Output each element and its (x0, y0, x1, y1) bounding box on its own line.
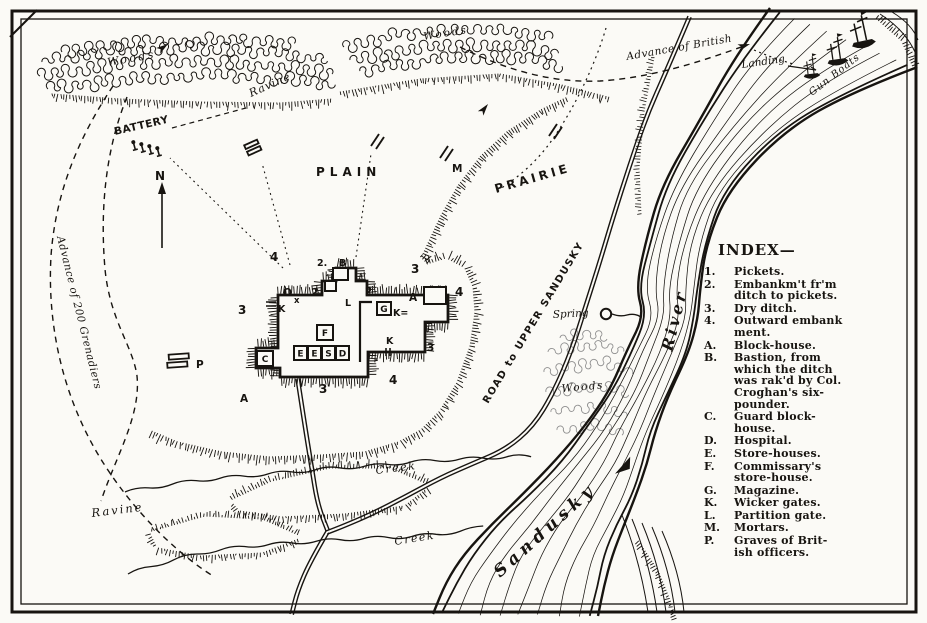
index-item-text: Pickets. (734, 266, 906, 278)
bluff-under-woods-east (340, 74, 609, 104)
ravine-upper-label: Ravine (246, 70, 293, 100)
cannon-icon (154, 146, 161, 157)
corner-shore (876, 15, 919, 68)
fort-stephenson (256, 268, 448, 377)
road-line (326, 16, 688, 531)
index-title: INDEX— (702, 241, 906, 259)
woods-by-river-label: Woods (561, 379, 604, 395)
ravine-mound-2 (145, 511, 299, 564)
road-line (293, 533, 329, 615)
river-bluff-west (633, 58, 654, 215)
fort-marker: 4 (270, 250, 278, 264)
small-woods-scribble (560, 329, 607, 341)
index-item: G.Magazine. (702, 485, 906, 497)
index-item-key: M. (702, 522, 734, 534)
index-item: B.Bastion, fromwhich the ditchwas rak'd … (702, 352, 906, 410)
grenadier-route-inner (101, 97, 137, 501)
shore-contour (632, 519, 657, 612)
index-item: 3.Dry ditch. (702, 303, 906, 315)
british-gun-bars (244, 140, 261, 156)
battery-cannon-icons (130, 140, 161, 157)
index-item-text: Store-houses. (734, 448, 906, 460)
index-item: E.Store-houses. (702, 448, 906, 460)
prairie-arrow (478, 102, 491, 116)
cannon-icon (146, 144, 153, 155)
fire-line-1 (170, 158, 283, 268)
fort-marker: x (294, 296, 300, 306)
fort-building-letter: F (322, 329, 328, 339)
shore-contour (622, 515, 648, 612)
gunboat-icon (845, 9, 876, 50)
mortar-slashes-2 (440, 146, 453, 161)
road-line (299, 378, 329, 529)
fort-wall (256, 268, 448, 377)
woods-scribble (360, 49, 563, 77)
index-item-text: Partition gate. (734, 510, 906, 522)
small-woods-scribble (548, 341, 624, 354)
creeks (125, 455, 531, 574)
index-item: F.Commissary'sstore-house. (702, 461, 906, 484)
fort-marker: M (452, 163, 462, 175)
prairie-label: PRAIRIE (493, 161, 572, 196)
ravine-lower-label: Ravine (90, 500, 144, 520)
sandusky-word-label: Sandusky (490, 479, 601, 582)
fort-marker: 4 (455, 285, 463, 299)
fort-marker: N (155, 169, 165, 183)
fort-building-letter: D (339, 350, 346, 360)
index-item: 4.Outward embankment. (702, 315, 906, 338)
river-flow-arrow (612, 457, 636, 477)
fort-marker: A (240, 393, 249, 405)
fort-marker: O (283, 287, 292, 299)
woods-top-left-label: Woods (106, 48, 157, 69)
index-item-text: Hospital. (734, 435, 906, 447)
river-word-label: River (657, 288, 691, 354)
fort-marker: K (278, 304, 286, 315)
fort-building-letter: S (325, 350, 331, 360)
map-index: INDEX— 1.Pickets.2.Embankm't fr'mditch t… (702, 241, 906, 559)
fort-building-box (333, 268, 348, 280)
corner-contours (880, 12, 918, 52)
creek-lower-label: Creek (393, 529, 435, 548)
index-item-text: Embankm't fr'mditch to pickets. (734, 279, 906, 302)
fort-marker: 2. (317, 258, 327, 269)
spring-icon (601, 309, 641, 319)
index-item-key: D. (702, 435, 734, 447)
fort-marker: A (409, 292, 418, 304)
index-item-key: B. (702, 352, 734, 364)
fort-building-letter: E (311, 350, 317, 360)
bluff-under-woods-west (52, 94, 331, 111)
index-item-text: Dry ditch. (734, 303, 906, 315)
fort-marker: 2 (365, 286, 372, 298)
graves-bars (167, 353, 190, 368)
creek-upper-line (125, 455, 531, 492)
index-item-key: 1. (702, 266, 734, 278)
index-item-key: A. (702, 340, 734, 352)
index-item: P.Graves of Brit-ish officers. (702, 535, 906, 558)
fort-building-letter: E (297, 350, 303, 360)
index-items: 1.Pickets.2.Embankm't fr'mditch to picke… (702, 266, 906, 558)
index-item-key: P. (702, 535, 734, 547)
cannon-icon (138, 142, 145, 153)
north-arrow (158, 182, 166, 248)
index-item-key: F. (702, 461, 734, 473)
battery-dash-line (172, 108, 246, 128)
fort-marker: 2 (311, 287, 318, 299)
fort-building-letter: G (380, 305, 387, 315)
fort-marker: B (339, 258, 346, 269)
index-item-text: Graves of Brit-ish officers. (734, 535, 906, 558)
landing-pointer-line (788, 66, 816, 70)
index-item: A.Block-house. (702, 340, 906, 352)
index-item-text: Commissary'sstore-house. (734, 461, 906, 484)
fort-marker: 3 (411, 262, 419, 276)
fort-building-letter: C (262, 355, 269, 365)
index-item: D.Hospital. (702, 435, 906, 447)
advance-grenadiers-label: Advance of 200 Grenadiers (54, 234, 104, 391)
fort-marker: K (386, 336, 394, 347)
index-item-key: G. (702, 485, 734, 497)
index-item-text: Mortars. (734, 522, 906, 534)
road-label: ROAD to UPPER SANDUSKY (481, 240, 586, 405)
fort-marker: L (345, 298, 351, 309)
mortar-slashes-1 (371, 134, 384, 149)
fort-building-box (424, 287, 446, 304)
index-item-text: Magazine. (734, 485, 906, 497)
index-item-text: Block-house. (734, 340, 906, 352)
index-item: L.Partition gate. (702, 510, 906, 522)
index-item: 2.Embankm't fr'mditch to pickets. (702, 279, 906, 302)
index-item: K.Wicker gates. (702, 497, 906, 509)
index-item-text: Outward embankment. (734, 315, 906, 338)
plain-label: PLAIN (316, 165, 381, 179)
mortar-slashes-3 (549, 124, 562, 139)
index-item-key: K. (702, 497, 734, 509)
index-item-key: 3. (702, 303, 734, 315)
index-item-key: 2. (702, 279, 734, 291)
creek-upper-label: Creek (375, 459, 417, 477)
spring-label: Spring (553, 307, 590, 321)
small-woods-scribble (551, 402, 627, 416)
index-item-key: C. (702, 411, 734, 423)
index-item-key: L. (702, 510, 734, 522)
index-item: C.Guard block-house. (702, 411, 906, 434)
fort-marker: 3 (319, 382, 327, 396)
fort-marker: 3 (238, 303, 246, 317)
fort-marker: 4 (389, 373, 397, 387)
cannon-icon (130, 140, 137, 151)
fort-marker: P (196, 359, 204, 371)
index-item: 1.Pickets. (702, 266, 906, 278)
battery-label: BATTERY (113, 114, 170, 138)
fort-building-box (325, 281, 336, 291)
map-page: GFCEESD42.B3A4343A3OxK22LK=KNMP Woods Wo… (0, 0, 927, 623)
index-item: M.Mortars. (702, 522, 906, 534)
index-item-text: Bastion, fromwhich the ditchwas rak'd by… (734, 352, 906, 410)
british-advance-arrow (738, 41, 752, 51)
fort-marker: 3 (427, 342, 434, 354)
index-item-text: Guard block-house. (734, 411, 906, 434)
index-item-key: E. (702, 448, 734, 460)
frame-corner-mark (10, 10, 37, 37)
index-item-text: Wicker gates. (734, 497, 906, 509)
index-item-key: 4. (702, 315, 734, 327)
fort-marker: K= (393, 308, 408, 319)
